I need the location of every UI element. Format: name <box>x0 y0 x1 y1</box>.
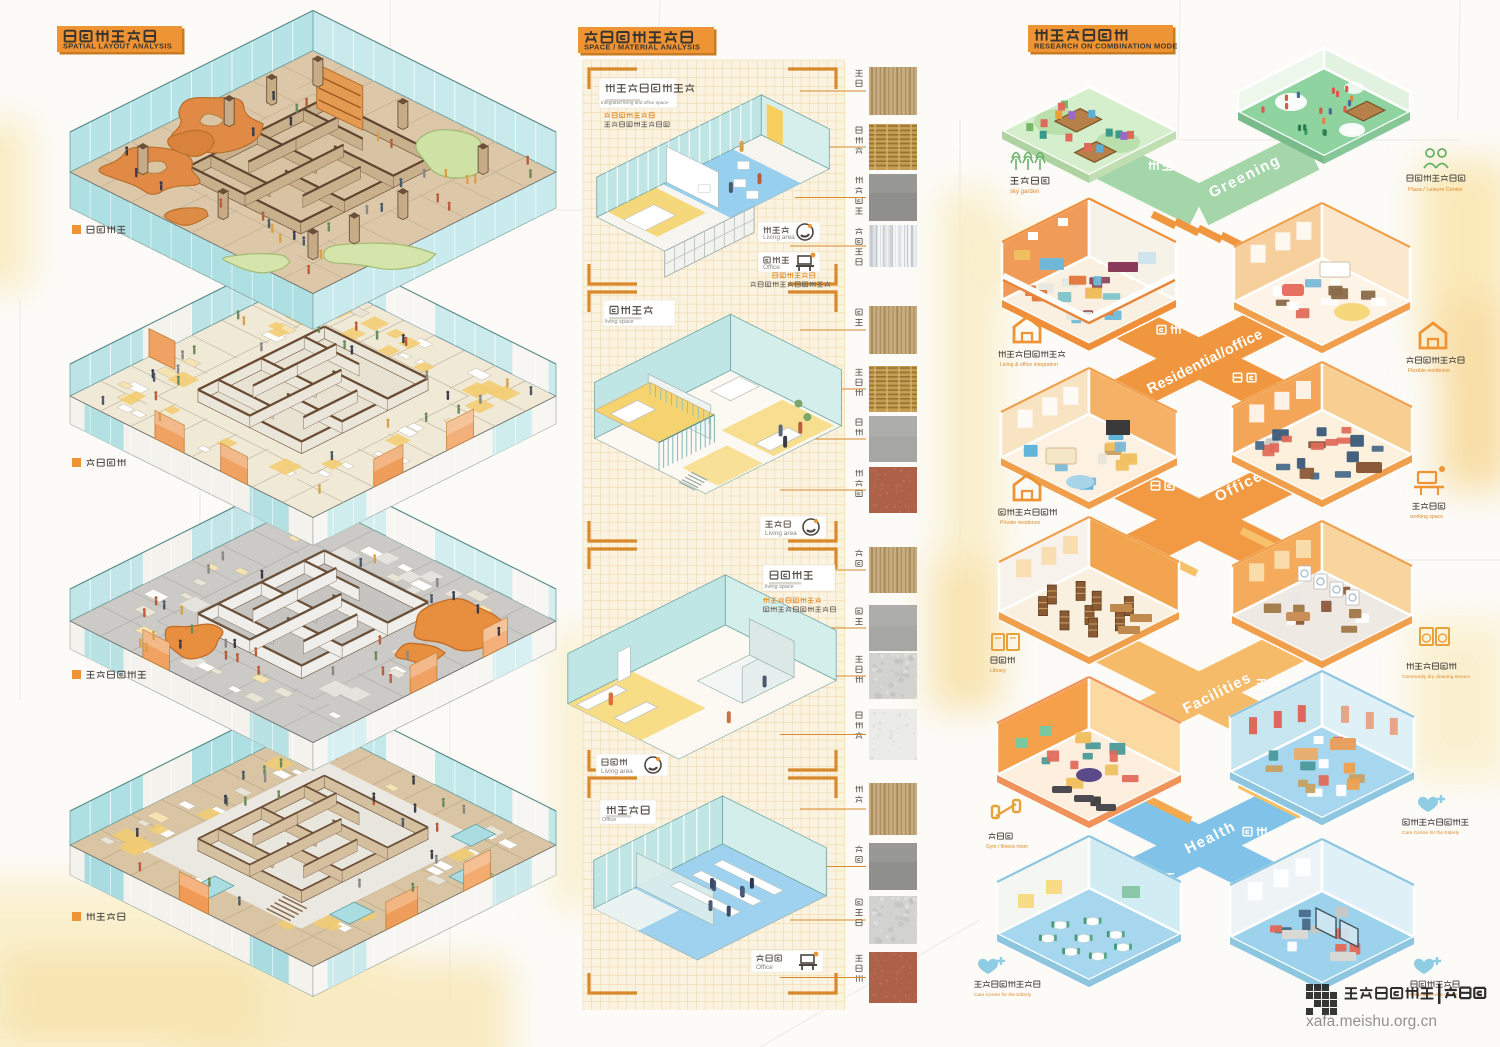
svg-text:Integrated living and office s: Integrated living and office space <box>601 100 669 105</box>
svg-text:Living & office integration: Living & office integration <box>1000 362 1058 368</box>
svg-text:SPACE / MATERIAL ANALYSIS: SPACE / MATERIAL ANALYSIS <box>584 43 700 52</box>
svg-text:Living area: Living area <box>765 530 797 537</box>
svg-text:Living area: Living area <box>601 768 633 775</box>
svg-text:Care Centre for the Elderly: Care Centre for the Elderly <box>974 992 1032 998</box>
svg-text:Office: Office <box>763 264 780 271</box>
svg-text:sky garden: sky garden <box>1010 189 1039 195</box>
svg-text:Library: Library <box>990 668 1006 674</box>
svg-text:working space: working space <box>1410 514 1443 520</box>
svg-text:SPATIAL LAYOUT ANALYSIS: SPATIAL LAYOUT ANALYSIS <box>63 42 172 51</box>
svg-text:Plaza / Leisure Centre: Plaza / Leisure Centre <box>1408 187 1462 193</box>
svg-text:Private residence: Private residence <box>1000 520 1040 526</box>
svg-text:Office: Office <box>602 817 616 823</box>
svg-text:Community dry cleaning service: Community dry cleaning service <box>1402 674 1470 680</box>
svg-text:xafa.meishu.org.cn: xafa.meishu.org.cn <box>1306 1013 1437 1030</box>
svg-text:RESEARCH ON COMBINATION MODE: RESEARCH ON COMBINATION MODE <box>1034 42 1178 51</box>
svg-text:Flexible residence: Flexible residence <box>1408 368 1450 374</box>
svg-text:living space: living space <box>605 319 634 325</box>
svg-text:living space: living space <box>765 584 794 590</box>
svg-text:Living area: Living area <box>763 234 795 241</box>
svg-text:Office: Office <box>756 964 773 971</box>
svg-text:Gym / fitness room: Gym / fitness room <box>986 844 1028 850</box>
svg-text:Care Centre for the Elderly: Care Centre for the Elderly <box>1402 830 1460 836</box>
